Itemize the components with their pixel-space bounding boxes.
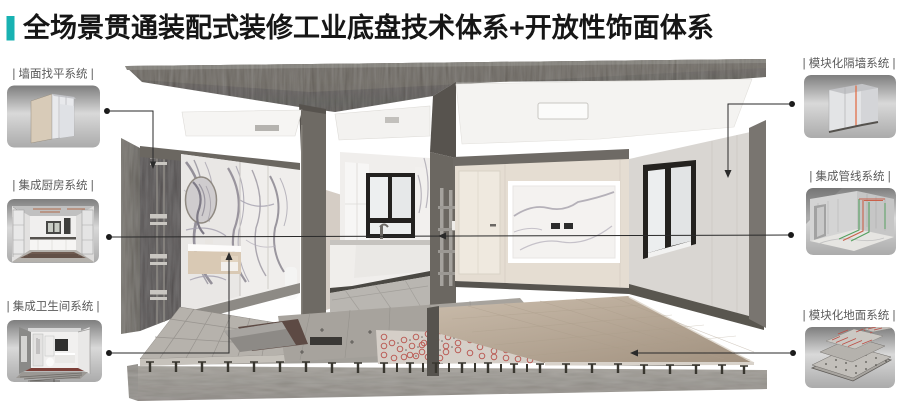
svg-text:| 模块化隔墙系统 |: | 模块化隔墙系统 |	[803, 56, 896, 70]
svg-text:| 集成厨房系统 |: | 集成厨房系统 |	[12, 178, 93, 192]
svg-text:| 模块化地面系统 |: | 模块化地面系统 |	[803, 308, 896, 322]
svg-text:| 墙面找平系统 |: | 墙面找平系统 |	[12, 67, 93, 81]
svg-text:| 集成管线系统 |: | 集成管线系统 |	[809, 169, 890, 183]
svg-text:| 集成卫生间系统 |: | 集成卫生间系统 |	[7, 299, 100, 313]
svg-text:全场景贯通装配式装修工业底盘技术体系+开放性饰面体系: 全场景贯通装配式装修工业底盘技术体系+开放性饰面体系	[22, 12, 714, 43]
